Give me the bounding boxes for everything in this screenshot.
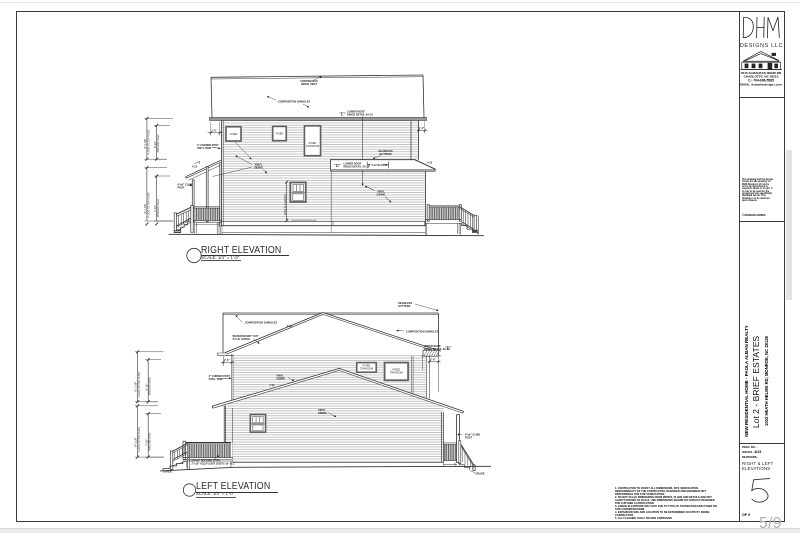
svg-text:RIDGE VENT: RIDGE VENT: [301, 82, 317, 86]
svg-text:4:12 SLOPE: 4:12 SLOPE: [372, 163, 387, 167]
svg-text:SIDING: SIDING: [254, 166, 263, 170]
svg-text:VINYL TRIM: VINYL TRIM: [197, 147, 211, 150]
svg-text:GRADE: GRADE: [476, 473, 485, 476]
svg-text:SIDING: SIDING: [377, 193, 386, 197]
svg-text:FLOOR TO TOP PLATE: FLOOR TO TOP PLATE: [147, 129, 150, 155]
svg-text:3050 SL EGRESS: 3050 SL EGRESS: [283, 194, 287, 215]
svg-text:WINDOW HEAD: WINDOW HEAD: [149, 377, 152, 395]
svg-text:FLOOR TO TOP PLATE: FLOOR TO TOP PLATE: [147, 192, 150, 218]
svg-text:"D": "D": [334, 163, 341, 168]
svg-text:RIDGE DETAIL 3A-10: RIDGE DETAIL 3A-10: [347, 113, 373, 117]
svg-text:TRANSOM: TRANSOM: [360, 367, 373, 371]
svg-text:TRANSOM: TRANSOM: [306, 144, 319, 148]
svg-text:4:12: 4:12: [192, 165, 198, 169]
svg-text:WINDOW HEAD: WINDOW HEAD: [157, 134, 160, 152]
svg-text:RIDGE DETAIL 3A-10: RIDGE DETAIL 3A-10: [424, 347, 450, 351]
svg-text:"E": "E": [339, 112, 346, 117]
svg-text:1'-0": 1'-0": [419, 127, 424, 130]
svg-text:2'-0": 2'-0": [430, 358, 436, 362]
svg-text:TRANSOM: TRANSOM: [390, 371, 403, 375]
svg-text:4:12: 4:12: [427, 161, 433, 165]
svg-text:RIDGE DETAIL 3A-10: RIDGE DETAIL 3A-10: [344, 165, 370, 169]
svg-text:FLOOR TO TOP PLATE: FLOOR TO TOP PLATE: [138, 426, 141, 452]
svg-text:WINDOW HEAD: WINDOW HEAD: [149, 432, 152, 450]
svg-text:2"x10" ACQ FLOOR JOISTS 16" O.: 2"x10" ACQ FLOOR JOISTS 16" O.C.: [192, 462, 236, 465]
svg-text:FIXED: FIXED: [230, 132, 238, 136]
svg-text:FIXED: FIXED: [276, 132, 284, 136]
svg-text:O.S.B. SHTHG: O.S.B. SHTHG: [233, 337, 251, 341]
svg-text:VINYL TRIM: VINYL TRIM: [209, 378, 223, 381]
svg-text:FLOOR TO TOP PLATE: FLOOR TO TOP PLATE: [138, 371, 141, 397]
svg-text:COMPOSITION SHINGLES: COMPOSITION SHINGLES: [406, 330, 439, 334]
svg-text:COMPOSITION SHINGLES: COMPOSITION SHINGLES: [278, 100, 311, 104]
svg-text:GUTTERS: GUTTERS: [379, 152, 392, 156]
svg-text:POST: POST: [465, 436, 472, 440]
svg-text:2'-0": 2'-0": [224, 358, 230, 362]
svg-text:GUTTERS: GUTTERS: [398, 304, 411, 308]
svg-text:WINDOW HEAD: WINDOW HEAD: [157, 199, 160, 217]
svg-text:4:12: 4:12: [287, 324, 293, 328]
svg-text:POST: POST: [178, 186, 185, 190]
svg-text:1'-0": 1'-0": [212, 129, 217, 132]
svg-text:COMPOSITION SHINGLES: COMPOSITION SHINGLES: [245, 321, 278, 325]
svg-text:SIDING: SIDING: [276, 377, 285, 381]
svg-text:4:12: 4:12: [269, 383, 275, 387]
svg-text:SIDING: SIDING: [318, 411, 327, 415]
